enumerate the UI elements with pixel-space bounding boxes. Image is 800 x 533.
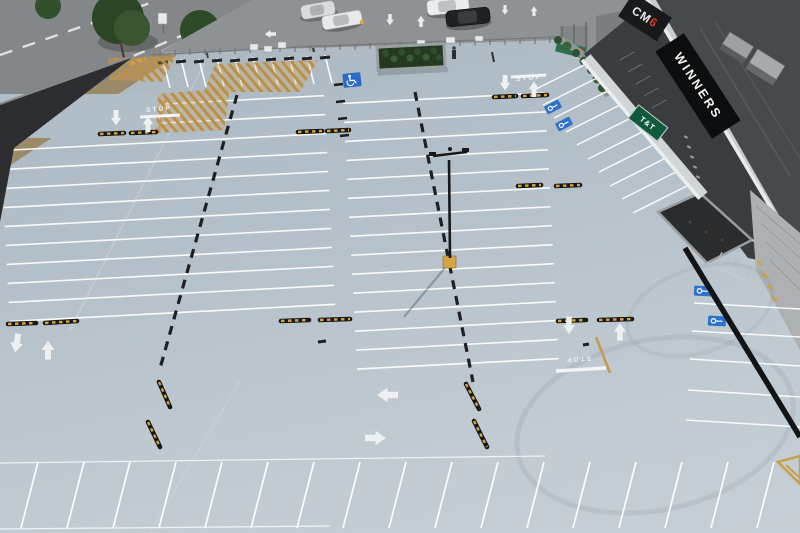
dashed-divider-lines [159, 92, 473, 382]
tnt-sign-label: T&T [638, 114, 657, 132]
railing [707, 263, 762, 288]
lamp-head [462, 148, 469, 152]
bollard [492, 52, 494, 62]
yellow-triangle-marking [778, 456, 800, 484]
person [452, 46, 456, 59]
arrow-right-icon [365, 431, 386, 445]
stall-lines-bottom-row [21, 462, 774, 528]
ev-charging-icon [544, 99, 562, 114]
aisle-baseline [0, 456, 545, 463]
lamp-head [429, 152, 436, 156]
traffic-cone [360, 20, 364, 24]
arrow-left-icon [377, 388, 398, 402]
arrow-down-icon [500, 75, 511, 90]
arrow-up-icon [614, 323, 626, 341]
aisle-baseline [0, 526, 330, 529]
accessible-stall-icon [342, 72, 361, 88]
ev-charging-icon [708, 316, 726, 327]
deck-planter-box [375, 42, 447, 76]
arrow-down-icon [9, 333, 25, 354]
aerial-photo: WINNERS CM 6 T&T STOP STOP STOP [0, 0, 800, 533]
arrow-up-icon [42, 341, 55, 360]
tire-marks [500, 313, 800, 533]
